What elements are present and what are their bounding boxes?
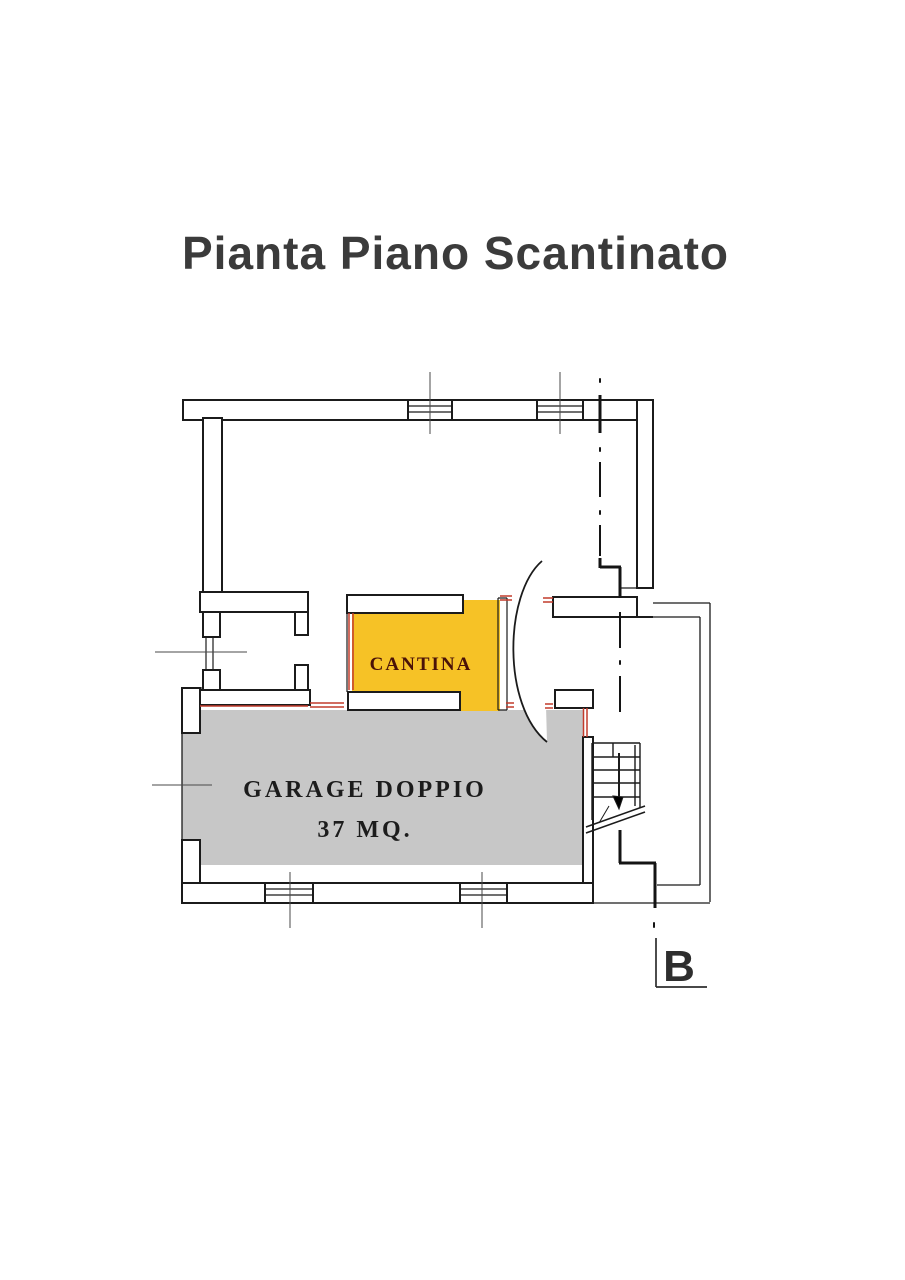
left-wall-upper <box>203 418 222 592</box>
cantina-bottom-wall <box>348 692 460 710</box>
door-jamb-bottom-right <box>545 704 553 708</box>
top-wall-mid <box>452 400 537 420</box>
left-room-top-wall <box>200 592 308 612</box>
garage-area-label: 37 MQ. <box>317 817 412 843</box>
wall-stub <box>555 690 593 708</box>
garage-door-recess <box>182 733 200 840</box>
stair-outline <box>592 743 640 820</box>
section-line-dashes <box>600 462 620 712</box>
staircase <box>586 743 645 833</box>
stair-break-slashes <box>586 806 645 833</box>
floor-plan-drawing: B CANTINA GARAGE DOPPIO 37 MQ. <box>0 0 905 1280</box>
bottom-window-1-frame <box>265 883 313 903</box>
cantina-room-label: CANTINA <box>370 654 473 675</box>
garage-bottom-wall <box>182 883 593 903</box>
section-marker-label: B <box>663 942 695 991</box>
left-room-left-wall-lower <box>203 670 220 690</box>
vestibule-red-sill <box>310 703 344 707</box>
corridor-top-wall <box>553 597 637 617</box>
right-wall-step <box>620 588 637 597</box>
garage-left-pillar-top <box>182 688 200 733</box>
garage-room-label: GARAGE DOPPIO <box>243 777 487 803</box>
section-marker-b: B <box>656 938 707 991</box>
stair-entry-red-jamb <box>584 708 588 737</box>
cantina-left-red-wall <box>349 613 353 690</box>
left-room-bottom-wall <box>182 690 310 705</box>
left-room-window <box>203 637 220 670</box>
left-room-left-wall-upper <box>203 612 220 637</box>
door-jamb-top-right <box>543 598 553 602</box>
bottom-window-2-frame <box>460 883 507 903</box>
right-wall-upper <box>637 400 653 588</box>
garage-left-pillar-bottom <box>182 840 200 883</box>
stair-treads <box>592 743 640 797</box>
left-room-right-wall-lower <box>295 665 308 690</box>
scanned-floor-plan-page: Pianta Piano Scantinato <box>0 0 905 1280</box>
terrace-outline <box>593 603 710 903</box>
left-room-right-wall-upper <box>295 612 308 635</box>
top-wall-right <box>583 400 640 420</box>
stair-arrow-icon <box>613 796 623 809</box>
cantina-top-wall <box>347 595 463 613</box>
